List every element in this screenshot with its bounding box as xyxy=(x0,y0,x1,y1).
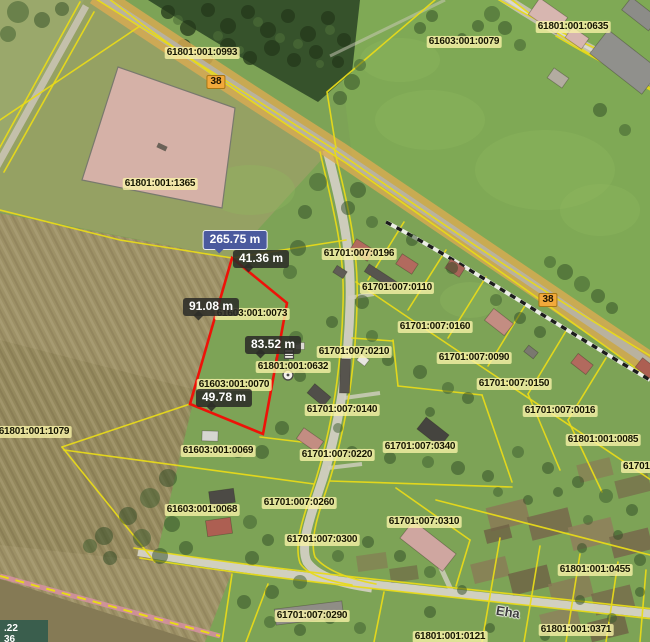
tree xyxy=(237,595,251,609)
building xyxy=(357,354,370,366)
tree xyxy=(294,624,306,636)
tree xyxy=(512,446,524,458)
tree xyxy=(490,294,502,306)
building xyxy=(339,359,350,393)
tree xyxy=(442,382,454,394)
tree xyxy=(498,21,512,35)
parcel-boundary xyxy=(232,240,346,258)
tree xyxy=(264,616,276,628)
map-viewport[interactable]: 61801:001:099361603:001:007961801:001:06… xyxy=(0,0,650,642)
tree xyxy=(262,534,274,546)
tree xyxy=(583,515,593,525)
tree xyxy=(613,530,623,540)
tree xyxy=(366,216,378,228)
building xyxy=(307,384,331,407)
tree xyxy=(133,529,151,547)
garden-plot xyxy=(470,556,510,584)
tree xyxy=(152,548,168,564)
tree xyxy=(557,264,573,280)
tree xyxy=(265,585,279,599)
tree xyxy=(34,12,50,28)
tree xyxy=(289,331,303,345)
tree xyxy=(333,423,343,433)
tree xyxy=(424,566,436,578)
tree xyxy=(366,330,378,342)
tree xyxy=(354,622,366,634)
tree xyxy=(232,446,244,458)
parcel-boundary xyxy=(482,395,512,482)
tree xyxy=(446,262,458,274)
tree xyxy=(451,461,465,475)
tree xyxy=(634,554,646,566)
tree xyxy=(462,392,474,404)
tree xyxy=(341,201,355,215)
tree xyxy=(413,365,427,379)
tree xyxy=(457,585,467,595)
tree xyxy=(414,22,426,34)
survey-marker-icon xyxy=(285,350,294,359)
building xyxy=(296,428,323,452)
tree xyxy=(593,103,607,117)
tree xyxy=(159,469,177,487)
tree xyxy=(255,445,269,459)
tree xyxy=(179,541,193,555)
building xyxy=(524,345,538,359)
tree xyxy=(309,173,327,191)
tree xyxy=(482,470,494,482)
building xyxy=(400,521,456,572)
tree xyxy=(243,515,257,529)
garden-plot xyxy=(508,564,552,595)
tree xyxy=(384,452,396,464)
building xyxy=(209,488,236,505)
tree xyxy=(635,587,645,597)
tree xyxy=(577,543,587,553)
tree xyxy=(472,20,484,32)
parcel-boundary xyxy=(524,546,540,642)
tree xyxy=(599,489,613,503)
tree xyxy=(523,495,533,505)
tree xyxy=(324,612,336,624)
building xyxy=(571,353,593,374)
tree xyxy=(83,539,97,553)
tree xyxy=(553,487,563,497)
parcel-boundary xyxy=(374,592,384,642)
tree xyxy=(355,295,369,309)
parcel-boundary xyxy=(456,540,470,586)
tree xyxy=(484,6,500,22)
tree xyxy=(426,10,438,22)
tree xyxy=(55,2,69,16)
tree xyxy=(362,536,374,548)
tree xyxy=(164,516,180,532)
tree xyxy=(0,26,16,42)
building xyxy=(417,417,449,447)
tree xyxy=(574,276,590,292)
tree xyxy=(626,504,638,516)
tree xyxy=(354,59,366,71)
tree xyxy=(283,265,297,279)
tree xyxy=(103,551,117,565)
parcel-boundary xyxy=(330,481,512,487)
parcel-boundary xyxy=(640,570,646,642)
tree xyxy=(607,613,617,623)
tree xyxy=(275,421,289,435)
tree xyxy=(572,476,584,488)
map-canvas[interactable] xyxy=(0,0,650,642)
tree xyxy=(344,74,360,90)
tree xyxy=(293,575,307,589)
tree xyxy=(394,550,406,562)
tree xyxy=(575,595,585,605)
tree xyxy=(290,240,306,256)
tree xyxy=(619,124,631,136)
tree xyxy=(406,234,418,246)
building xyxy=(206,517,233,536)
tree xyxy=(544,256,556,268)
tree xyxy=(514,39,526,51)
garden-plot xyxy=(614,473,650,499)
tree xyxy=(140,488,160,508)
coordinate-readout: .22 36 xyxy=(0,620,48,642)
tree xyxy=(333,91,347,105)
tree xyxy=(457,33,467,43)
garden-plot xyxy=(527,507,574,540)
tree xyxy=(493,487,503,497)
tree xyxy=(7,1,29,23)
tree xyxy=(606,302,618,314)
parcel-boundary xyxy=(246,584,268,642)
tree xyxy=(95,527,113,545)
tree xyxy=(422,456,434,468)
tree xyxy=(425,407,435,417)
tree xyxy=(346,446,358,458)
tree xyxy=(332,550,344,562)
tree xyxy=(514,312,526,324)
tree xyxy=(382,354,394,366)
building xyxy=(396,254,418,274)
tree xyxy=(298,205,312,219)
tree xyxy=(607,567,617,577)
parcel-boundary xyxy=(528,394,560,470)
tree xyxy=(350,182,366,198)
tree xyxy=(485,623,495,633)
parcel-boundary xyxy=(393,340,398,386)
coordinate-line1: .22 xyxy=(4,623,48,634)
tree xyxy=(424,606,436,618)
tree xyxy=(591,289,605,303)
tree xyxy=(294,370,306,382)
tree xyxy=(540,631,550,641)
parcel-boundary xyxy=(528,331,566,394)
garden-plot xyxy=(389,565,419,583)
coordinate-line2: 36 xyxy=(4,634,48,642)
garden-plot xyxy=(356,552,388,572)
garden-plot xyxy=(484,524,513,544)
tree xyxy=(245,551,259,565)
building xyxy=(202,431,218,442)
tree xyxy=(534,326,546,338)
tree xyxy=(119,507,137,525)
tree xyxy=(326,316,338,328)
tree xyxy=(542,462,554,474)
